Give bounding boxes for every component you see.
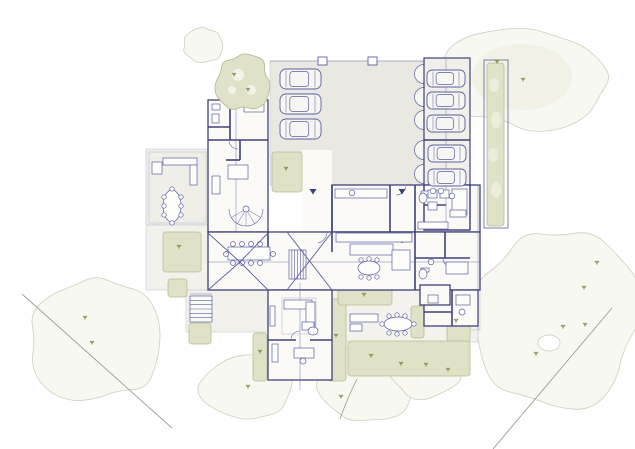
chair-icon <box>162 213 166 217</box>
chair-icon <box>403 314 407 318</box>
chair-icon <box>430 188 436 194</box>
furniture-rect <box>428 202 437 210</box>
chair-icon <box>349 190 355 196</box>
furniture-rect <box>212 176 220 194</box>
furniture-rect <box>350 314 378 322</box>
chair-icon <box>243 206 249 212</box>
chair-icon <box>459 309 465 315</box>
planting-bed <box>348 341 470 376</box>
chair-icon <box>367 257 371 261</box>
furniture-oval <box>308 327 318 335</box>
chair-icon <box>449 193 455 199</box>
planting-bed <box>168 279 187 297</box>
chair-icon <box>249 242 254 247</box>
furniture-rect <box>212 114 219 123</box>
furniture-oval <box>358 261 380 275</box>
furniture-rect <box>446 262 468 274</box>
gate-post <box>318 57 327 65</box>
furniture-rect <box>336 233 412 242</box>
furniture-rect <box>392 250 410 270</box>
chair-icon <box>387 331 391 335</box>
chair-icon <box>387 314 391 318</box>
chair-icon <box>367 276 371 280</box>
floor-plan-page <box>0 0 635 449</box>
chair-icon <box>179 195 183 199</box>
tree-canopy-outline <box>475 233 635 410</box>
tree-icon <box>215 54 270 109</box>
chair-icon <box>179 204 183 208</box>
furniture-oval <box>419 269 427 279</box>
furniture-rect <box>335 189 387 198</box>
chair-icon <box>300 358 306 364</box>
hedge-texture <box>488 148 498 162</box>
chair-icon <box>412 322 416 326</box>
site-plan-drawing <box>0 0 635 449</box>
chair-icon <box>395 332 399 336</box>
furniture-rect <box>294 348 314 358</box>
furniture-rect <box>450 210 466 217</box>
chair-icon <box>162 195 166 199</box>
furniture-oval <box>384 317 412 331</box>
tree-highlight <box>228 86 236 94</box>
furniture-rect <box>190 165 197 185</box>
furniture-rect <box>270 306 275 326</box>
chair-icon <box>249 261 254 266</box>
chair-icon <box>271 252 276 257</box>
planting-bed <box>253 333 267 381</box>
furniture-rect <box>418 222 448 229</box>
furniture-rect <box>152 162 162 174</box>
chair-icon <box>428 259 434 265</box>
chair-icon <box>375 258 379 262</box>
chair-icon <box>162 204 166 208</box>
furniture-oval <box>419 193 427 203</box>
planting-bed <box>189 323 211 344</box>
tree-canopy-outline <box>32 278 160 401</box>
chair-icon <box>258 261 263 266</box>
chair-icon <box>375 275 379 279</box>
planting-bed <box>272 152 302 192</box>
chair-icon <box>240 242 245 247</box>
chair-icon <box>438 188 444 194</box>
chair-icon <box>258 242 263 247</box>
walkway <box>302 150 332 232</box>
furniture-rect <box>163 158 197 165</box>
furniture-rect <box>228 247 270 260</box>
furniture-rect <box>350 244 393 255</box>
chair-icon <box>403 331 407 335</box>
chair-icon <box>359 275 363 279</box>
hedge-texture <box>491 112 501 128</box>
furniture-rect <box>350 324 362 331</box>
hedge-texture <box>489 78 499 92</box>
furniture-rect <box>428 295 438 303</box>
chair-icon <box>170 221 174 225</box>
chair-icon <box>231 242 236 247</box>
chair-icon <box>395 313 399 317</box>
gate-post <box>368 57 377 65</box>
tree-canopy-outline <box>184 27 223 62</box>
chair-icon <box>179 213 183 217</box>
chair-icon <box>359 258 363 262</box>
chair-icon <box>224 252 229 257</box>
furniture-rect <box>212 104 220 110</box>
furniture-rect <box>456 295 470 305</box>
furniture-rect <box>228 165 248 179</box>
canopy-gap <box>538 335 560 351</box>
chair-icon <box>170 187 174 191</box>
planting-bed <box>163 232 201 272</box>
chair-icon <box>231 261 236 266</box>
hedge-texture <box>491 182 501 198</box>
furniture-rect <box>272 344 278 362</box>
chair-icon <box>380 322 384 326</box>
